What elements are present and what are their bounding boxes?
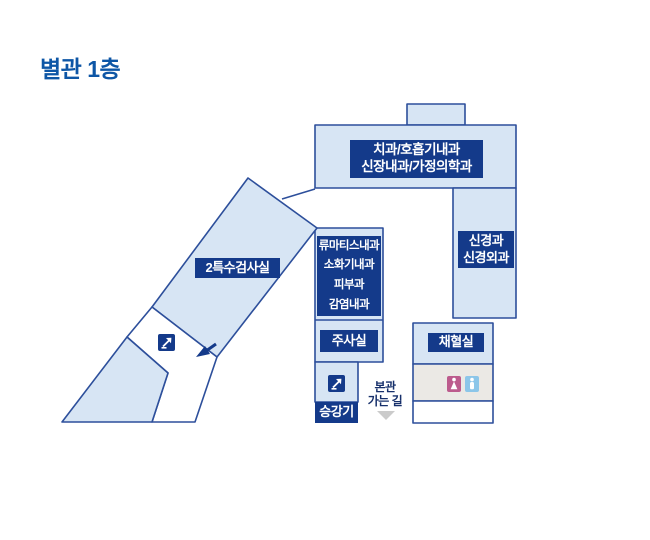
room-label-injection-room: 주사실 (320, 330, 378, 352)
down-chevron-icon (377, 411, 395, 420)
room-label-elevator: 승강기 (315, 402, 358, 423)
escalator-icon (158, 334, 175, 351)
main-building-path-label: 본관 가는 길 (358, 380, 412, 408)
lower-right-room-shape (413, 401, 493, 423)
roof-bump-shape (407, 104, 465, 125)
connector-line (282, 189, 315, 199)
room-label-right-wing: 신경과 신경외과 (458, 231, 514, 268)
room-label-blood-room: 채혈실 (428, 333, 484, 352)
room-label-top-building: 치과/호흡기내과 신장내과/가정의학과 (350, 140, 483, 178)
floor-map: 별관 1층 (0, 0, 650, 540)
room-label-special-lab: 2특수검사실 (195, 258, 280, 278)
room-label-clinics: 류마티스내과 소화기내과 피부과 감염내과 (317, 236, 381, 316)
male-restroom-icon (465, 376, 479, 392)
escalator-icon (328, 375, 345, 392)
female-restroom-icon (447, 376, 461, 392)
